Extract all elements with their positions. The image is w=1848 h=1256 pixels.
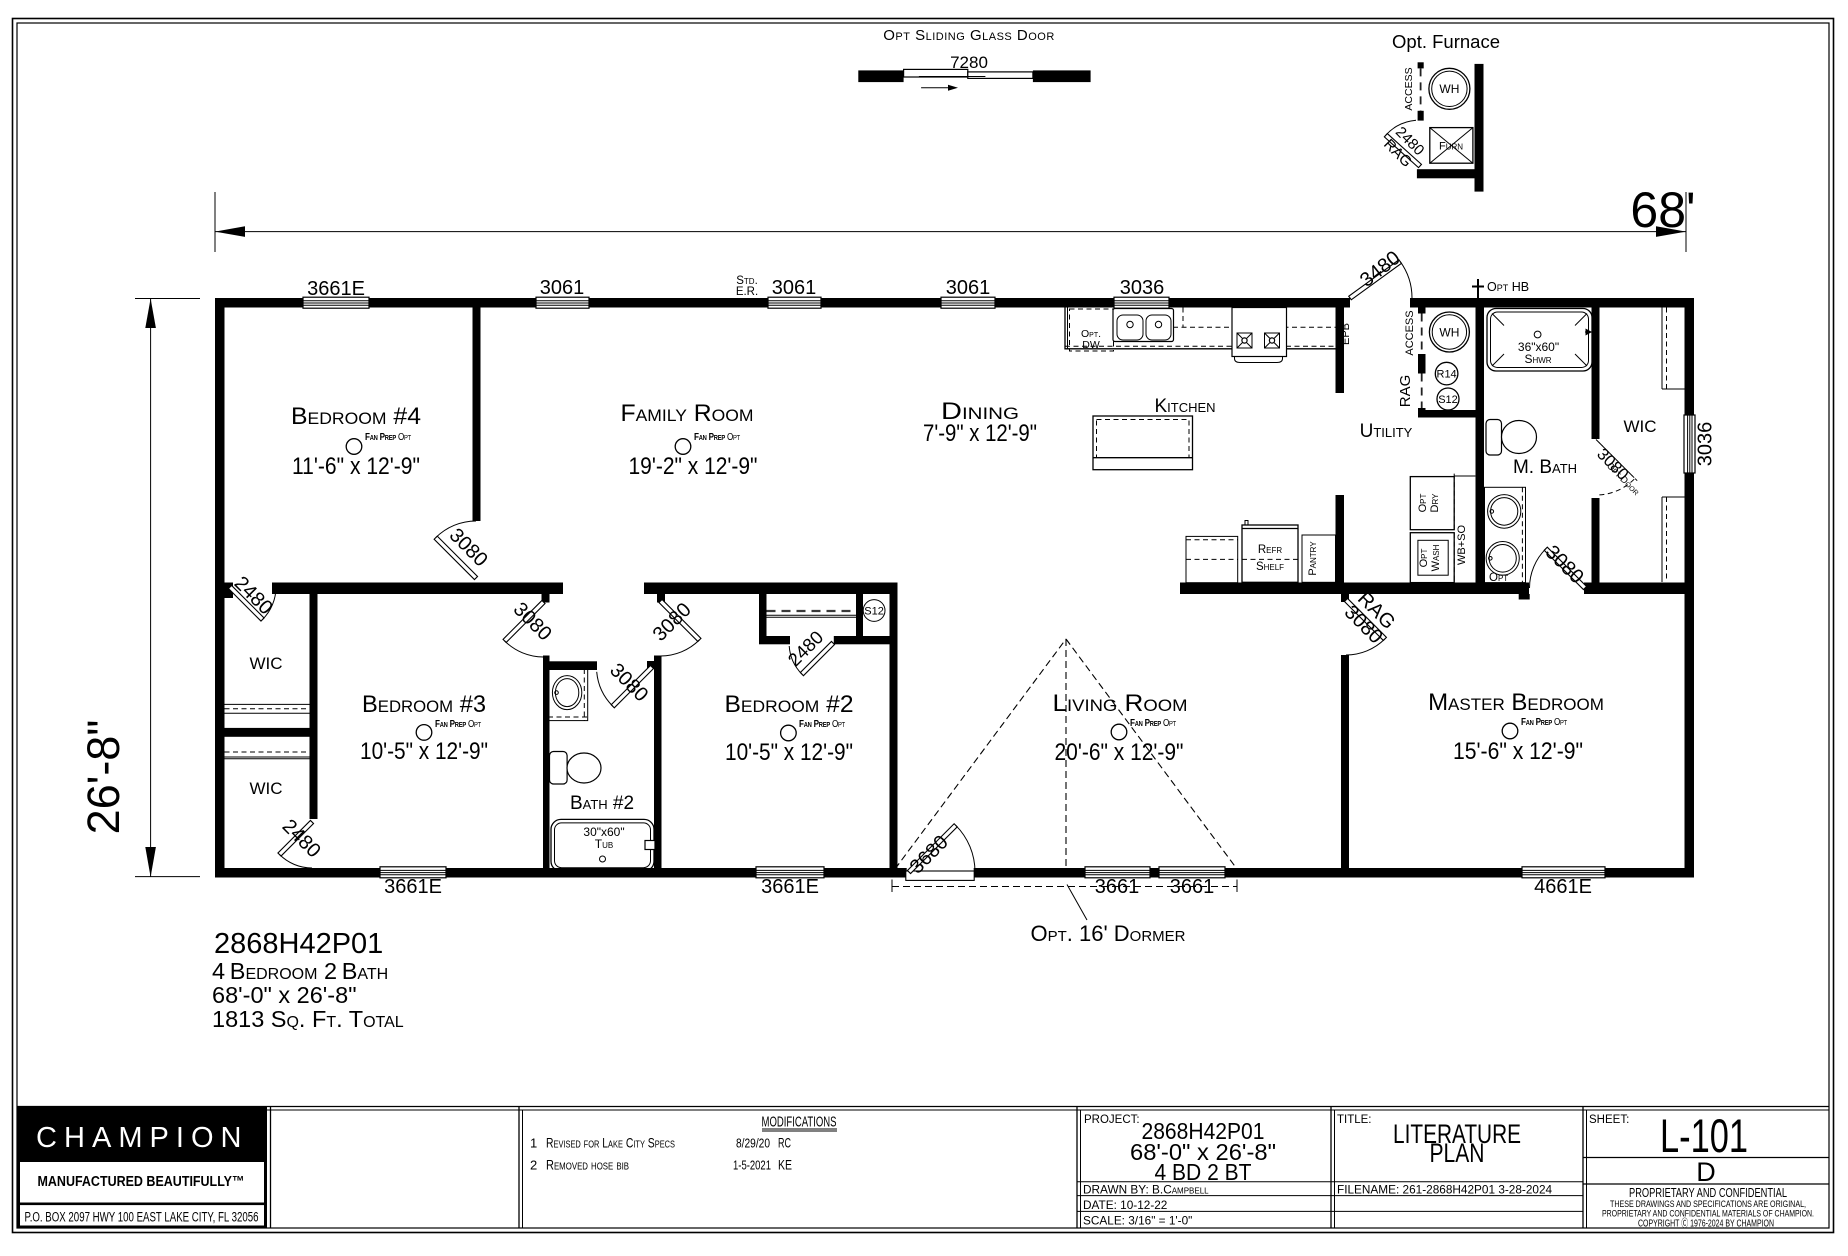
svg-text:EPB: EPB — [1340, 323, 1352, 345]
svg-text:L-101: L-101 — [1660, 1109, 1748, 1162]
svg-text:Revised for Lake City Specs: Revised for Lake City Specs — [546, 1135, 675, 1151]
svg-text:ACCESS: ACCESS — [1403, 67, 1415, 110]
svg-text:P.O. BOX 2097 HWY 100 EAST LAK: P.O. BOX 2097 HWY 100 EAST LAKE CITY, FL… — [25, 1210, 259, 1226]
svg-text:68'-0" x 26'-8": 68'-0" x 26'-8" — [212, 982, 357, 1008]
svg-text:DRAWN BY: B.Campbell: DRAWN BY: B.Campbell — [1083, 1183, 1209, 1197]
svg-text:Refr: Refr — [1258, 544, 1283, 556]
svg-text:Bedroom #4: Bedroom #4 — [291, 403, 421, 430]
svg-text:FILENAME: 261-2868H42P01 3-28-: FILENAME: 261-2868H42P01 3-28-2024 — [1337, 1183, 1553, 1197]
svg-text:4661E: 4661E — [1534, 876, 1592, 898]
svg-text:Opt: Opt — [1489, 572, 1508, 584]
svg-text:4 Bedroom 2 Bath: 4 Bedroom 2 Bath — [212, 958, 388, 984]
svg-text:19'-2" x 12'-9": 19'-2" x 12'-9" — [629, 453, 758, 480]
svg-text:1813 Sq. Ft. Total: 1813 Sq. Ft. Total — [212, 1006, 404, 1032]
svg-text:Fan Prep Opt: Fan Prep Opt — [1130, 718, 1177, 729]
svg-text:DW: DW — [1082, 339, 1100, 351]
svg-text:26'-8": 26'-8" — [78, 720, 129, 835]
svg-text:Fan Prep Opt: Fan Prep Opt — [799, 719, 846, 730]
svg-text:E.R.: E.R. — [736, 286, 758, 298]
svg-text:15'-6" x 12'-9": 15'-6" x 12'-9" — [1453, 738, 1583, 765]
svg-text:Bedroom #3: Bedroom #3 — [362, 691, 486, 718]
svg-text:Utility: Utility — [1360, 421, 1413, 442]
svg-text:PROPRIETARY AND CONFIDENTIAL: PROPRIETARY AND CONFIDENTIAL — [1629, 1186, 1787, 1200]
svg-text:2868H42P01: 2868H42P01 — [214, 928, 383, 960]
svg-text:Fan Prep Opt: Fan Prep Opt — [694, 432, 741, 443]
svg-text:ACCESS: ACCESS — [1404, 310, 1416, 355]
svg-text:3661E: 3661E — [384, 876, 442, 898]
svg-text:Removed hose bib: Removed hose bib — [546, 1157, 629, 1173]
svg-text:Shelf: Shelf — [1256, 561, 1284, 573]
svg-text:Tub: Tub — [595, 837, 613, 851]
svg-text:PLAN: PLAN — [1430, 1138, 1485, 1168]
svg-text:3061: 3061 — [772, 277, 817, 299]
svg-text:SCALE: 3/16" = 1'-0": SCALE: 3/16" = 1'-0" — [1083, 1214, 1192, 1228]
svg-text:Fan Prep Opt: Fan Prep Opt — [435, 719, 482, 730]
svg-text:DATE: 10-12-22: DATE: 10-12-22 — [1083, 1198, 1167, 1212]
svg-text:Master Bedroom: Master Bedroom — [1428, 689, 1604, 716]
svg-text:S12: S12 — [864, 606, 884, 618]
svg-text:WIC: WIC — [249, 779, 282, 798]
svg-text:CHAMPION: CHAMPION — [36, 1122, 248, 1154]
svg-text:8/29/20: 8/29/20 — [736, 1136, 770, 1151]
svg-text:MANUFACTURED BEAUTIFULLY™: MANUFACTURED BEAUTIFULLY™ — [38, 1174, 245, 1190]
svg-text:3036: 3036 — [1120, 277, 1165, 299]
svg-text:WH: WH — [1439, 326, 1459, 340]
svg-text:R14: R14 — [1437, 369, 1457, 381]
svg-text:Opt. 16' Dormer: Opt. 16' Dormer — [1030, 921, 1185, 946]
svg-text:1: 1 — [530, 1136, 537, 1151]
svg-text:Shwr: Shwr — [1524, 352, 1551, 366]
svg-text:Pantry: Pantry — [1307, 541, 1319, 576]
svg-text:3061: 3061 — [946, 277, 991, 299]
svg-text:RC: RC — [778, 1135, 791, 1151]
svg-text:3661E: 3661E — [761, 876, 819, 898]
svg-text:Fan Prep Opt: Fan Prep Opt — [1521, 717, 1568, 728]
svg-text:SHEET:: SHEET: — [1589, 1114, 1629, 1126]
svg-text:S12: S12 — [1438, 394, 1458, 406]
svg-text:3661E: 3661E — [307, 278, 365, 300]
svg-text:1-5-2021: 1-5-2021 — [733, 1158, 771, 1173]
svg-text:WIC: WIC — [249, 654, 282, 673]
svg-text:M. Bath: M. Bath — [1513, 457, 1577, 478]
svg-text:2: 2 — [530, 1158, 537, 1173]
svg-text:Dry: Dry — [1429, 493, 1441, 513]
svg-text:MODIFICATIONS: MODIFICATIONS — [762, 1114, 837, 1131]
svg-text:TITLE:: TITLE: — [1337, 1114, 1372, 1126]
svg-text:Opt: Opt — [1417, 493, 1429, 512]
svg-text:Bedroom #2: Bedroom #2 — [725, 691, 854, 718]
svg-text:Living Room: Living Room — [1053, 690, 1188, 717]
svg-text:Fan Prep Opt: Fan Prep Opt — [365, 432, 412, 443]
svg-text:RAG: RAG — [1397, 375, 1414, 408]
svg-text:Opt. Furnace: Opt. Furnace — [1392, 31, 1500, 52]
svg-text:Kitchen: Kitchen — [1154, 396, 1215, 417]
svg-text:Opt Sliding Glass Door: Opt Sliding Glass Door — [883, 27, 1055, 44]
svg-text:Family Room: Family Room — [621, 400, 754, 427]
svg-text:10'-5" x 12'-9": 10'-5" x 12'-9" — [360, 738, 488, 765]
svg-text:Bath #2: Bath #2 — [570, 793, 634, 814]
svg-text:WH: WH — [1439, 82, 1459, 96]
svg-text:PROJECT:: PROJECT: — [1084, 1114, 1140, 1126]
svg-text:3036: 3036 — [1694, 422, 1716, 467]
svg-text:Wash: Wash — [1430, 544, 1442, 571]
svg-text:4 BD 2 BT: 4 BD 2 BT — [1155, 1159, 1252, 1185]
svg-text:10'-5" x 12'-9": 10'-5" x 12'-9" — [725, 739, 853, 766]
svg-text:WB+SO: WB+SO — [1456, 525, 1468, 565]
svg-text:Furn: Furn — [1439, 141, 1463, 153]
svg-text:3061: 3061 — [540, 277, 585, 299]
svg-text:Opt: Opt — [1418, 548, 1430, 567]
svg-text:D: D — [1696, 1157, 1716, 1187]
svg-text:20'-6" x 12'-9": 20'-6" x 12'-9" — [1055, 739, 1184, 766]
svg-text:KE: KE — [778, 1157, 792, 1173]
svg-text:COPYRIGHT Ⓒ 1976-2024 BY CHAMP: COPYRIGHT Ⓒ 1976-2024 BY CHAMPION — [1638, 1218, 1774, 1230]
svg-text:7'-9" x 12'-9": 7'-9" x 12'-9" — [923, 420, 1037, 447]
svg-text:Opt HB: Opt HB — [1487, 280, 1529, 294]
svg-text:11'-6" x 12'-9": 11'-6" x 12'-9" — [292, 453, 420, 480]
svg-text:WIC: WIC — [1623, 417, 1656, 436]
